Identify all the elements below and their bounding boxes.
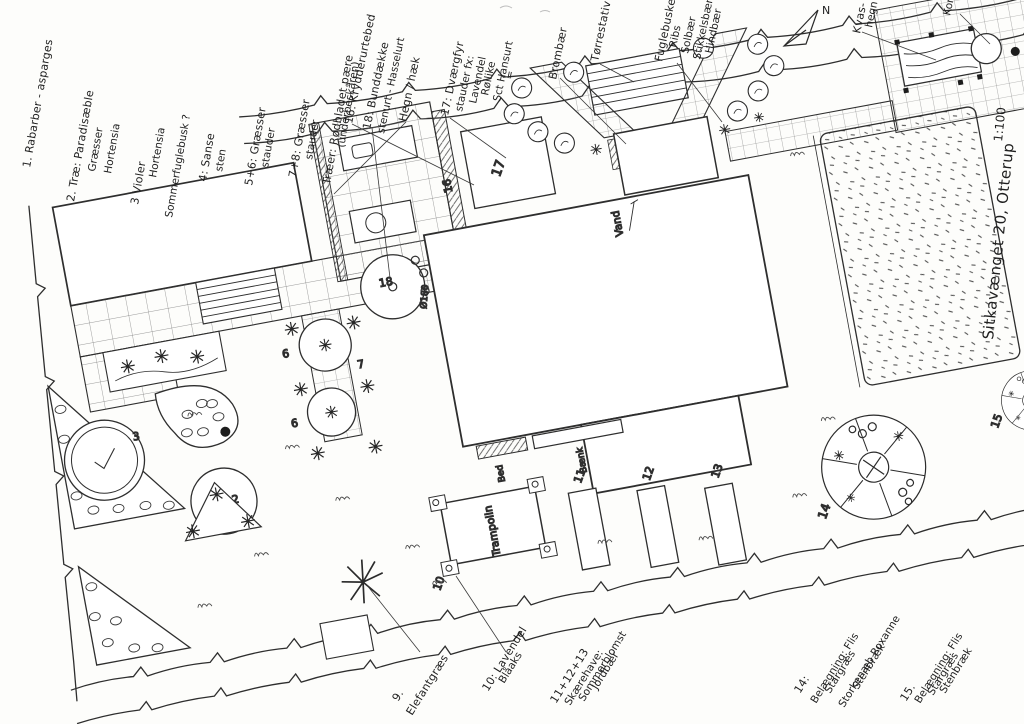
legend-bottom-label: 9. <box>390 687 407 703</box>
garden-plan-canvas: 5 16 17 18 Ø180 <box>0 0 1024 724</box>
plan-number-6b: 6 <box>290 416 299 430</box>
path-pear-trees <box>281 305 387 466</box>
plan-number-6a: 6 <box>281 347 290 361</box>
legend-top-label: 4: Sanse <box>196 132 217 183</box>
teardrop-bed-4 <box>155 378 242 455</box>
plan-number-16: 16 <box>440 178 455 194</box>
plan-scale: 1:100 <box>991 106 1009 142</box>
legend-bottom: 9. Elefantgræs 10: Lavendel Blåaks 11+12… <box>390 613 976 717</box>
plan-drawing: 5 16 17 18 Ø180 <box>0 0 1024 724</box>
legend-top-label: 1. Rabarber - asparges <box>20 38 55 168</box>
legend-top-label: sten <box>213 148 229 172</box>
legend-top-label: = <box>503 70 517 81</box>
legend-bottom-label: Elefantgræs <box>404 652 452 717</box>
legend-bottom-label: Stenbræk <box>850 641 888 692</box>
road-gate <box>320 615 374 659</box>
plan-number-7: 7 <box>356 357 365 371</box>
scan-smudge <box>500 6 550 12</box>
triangle-bed-1 <box>78 549 190 665</box>
plan-number-18: 18 <box>378 275 394 290</box>
legend-top-label: Tørrestativ <box>588 0 614 64</box>
legend-top-label: Hortensia <box>147 127 168 179</box>
north-arrow-icon <box>784 10 818 46</box>
garden-plan-scan: 5 16 17 18 Ø180 <box>0 0 1024 724</box>
elephant-grass-9 <box>338 556 387 606</box>
plan-number-15: 15 <box>988 412 1005 430</box>
legend-bottom-label: 14: <box>792 673 813 695</box>
bed-strip-label: Bed <box>495 464 508 483</box>
plan-number-14: 14 <box>815 502 833 521</box>
north-label: N <box>822 4 830 17</box>
plan-number-3: 3 <box>132 430 141 444</box>
tree-diameter-label: Ø180 <box>418 284 431 309</box>
